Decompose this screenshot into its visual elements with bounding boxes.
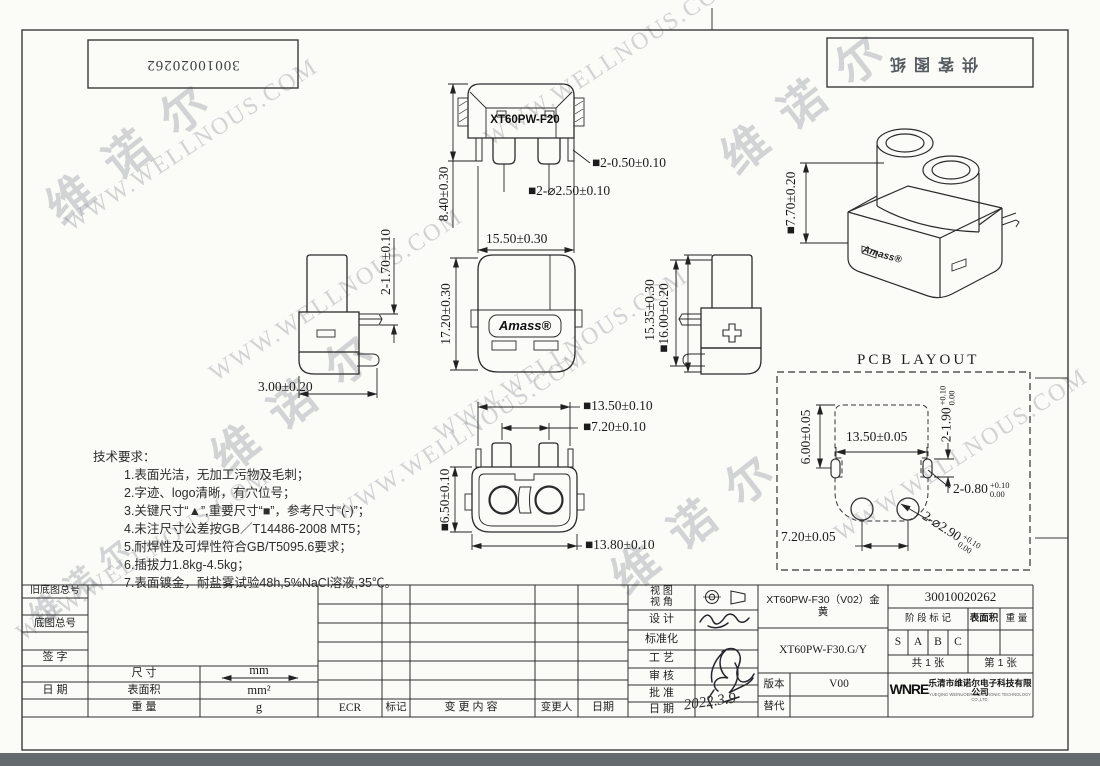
tech-requirements-title: 技术要求： [93, 446, 156, 465]
front-view-dim-lines [448, 84, 590, 253]
cell-doc-number: 30010020262 [888, 585, 1033, 608]
pcb-slot-length-tolerance: +0.100.00 [939, 386, 956, 406]
pcb-slot-width-tolerance: +0.100.00 [990, 481, 1010, 498]
cell-old-base-no: 旧底图总号 [22, 585, 88, 598]
dim-bottom-w2: ■7.20±0.10 [583, 419, 646, 435]
cell-surface-label: 表面积 [88, 682, 200, 699]
tech-item-5: 5.耐焊性及可焊性符合GB/T5095.6要求； [124, 536, 352, 555]
cell-stage-label: 阶 段 标 记 [888, 608, 968, 630]
cell-product-name: XT60PW-F30（V02）金 黄 [760, 587, 886, 626]
dim-front-height: 8.40±0.30 [436, 167, 452, 222]
tech-item-6: 6.插拔力1.8kg-4.5kg； [124, 554, 250, 573]
pcb-title: PCB LAYOUT [857, 352, 979, 369]
pcb-slot-length-value: 2-1.90 [938, 407, 953, 442]
tech-item-2: 2.字迹、logo清晰，有穴位号； [124, 482, 296, 501]
cell-standardize: 标准化 [628, 630, 695, 650]
cell-surface-value: mm² [200, 682, 318, 699]
iso-amass-logo: Amass® [860, 244, 903, 266]
cell-sheet-index: 第 1 张 [968, 655, 1033, 673]
dim-side-pin: 2-1.70±0.10 [378, 229, 394, 295]
cell-rev-mark: 标记 [382, 699, 410, 717]
company-name-en: YUEQING WEINUOER ELECTRONIC TECHNOLOGY C… [928, 694, 1032, 701]
cell-design: 设 计 [628, 610, 695, 630]
cell-sign-label: 签 字 [22, 650, 88, 666]
dim-front-width: 15.50±0.30 [486, 231, 547, 247]
cell-date-label: 日 期 [22, 682, 88, 699]
tech-item-3: 3.关键尺寸“▲”,重要尺寸“■”，参考尺寸“(-)”； [124, 500, 370, 519]
center-front-view [471, 255, 582, 372]
cell-base-no: 底图总号 [22, 615, 88, 632]
isometric-dim-lines [800, 163, 884, 243]
dim-bottom-w3: ■13.80±0.10 [585, 537, 655, 553]
cell-surface-col: 表面积 [968, 608, 1000, 630]
center-front-dim-lines [450, 258, 478, 370]
cell-weight-label: 重 量 [88, 699, 200, 717]
cell-sheet-total: 共 1 张 [888, 655, 968, 673]
dim-bottom-w1: ■13.50±0.10 [583, 398, 653, 414]
bottom-view-dim-lines [450, 402, 582, 550]
old-doc-number-box: 30010020262 [88, 40, 298, 88]
tech-item-7: 7.表面镀金，耐盐雾试验48h,5%NaCl溶液,35℃。 [124, 572, 397, 591]
cell-rev-date: 日期 [578, 699, 628, 717]
cell-weight-value: g [200, 699, 318, 717]
company-logo: WNRE [890, 680, 928, 698]
projection-symbol-icon [703, 591, 745, 605]
scan-edge [0, 753, 1100, 766]
tech-item-1: 1.表面光洁，无加工污物及毛刺； [124, 464, 309, 483]
dim-right-h2: ■16.00±0.20 [656, 283, 672, 353]
cell-product-model: XT60PW-F30.G/Y [760, 628, 886, 673]
cell-size-label: 尺 寸 [88, 666, 200, 682]
dim-front-pin: ■2-0.50±0.10 [592, 155, 666, 171]
cell-review: 审 核 [628, 668, 695, 685]
cell-weight-col: 重 量 [1000, 608, 1033, 630]
amass-logo: Amass® [491, 318, 559, 333]
isometric-view: Amass® [848, 129, 1019, 298]
cell-rev-ecr: ECR [318, 699, 382, 717]
cell-rev-content: 变更内容 [410, 699, 535, 717]
cell-stage-b: B [928, 630, 948, 655]
dim-side-offset: 3.00±0.20 [258, 379, 313, 395]
pcb-dim-width: 13.50±0.05 [846, 429, 907, 445]
cell-process: 工 艺 [628, 650, 695, 668]
cell-stage-a: A [908, 630, 928, 655]
cell-size-value: mm [200, 663, 318, 678]
front-view-part-label: XT60PW-F20 [489, 114, 561, 126]
dim-iso-height: ■7.70±0.20 [783, 172, 799, 235]
customer-drawing-stamp: 供客图纸 [827, 38, 1033, 87]
pcb-dim-pitch: 7.20±0.05 [781, 529, 836, 545]
cell-version-value: V00 [790, 673, 888, 696]
cell-stage-s: S [888, 630, 908, 655]
dim-front-dia: ■2-⌀2.50±0.10 [528, 183, 610, 199]
left-side-view [299, 255, 382, 374]
pcb-slot-width-value: 2-0.80 [953, 481, 988, 496]
bottom-view [465, 443, 584, 532]
pcb-dim-slot-width: 2-0.80+0.100.00 [953, 481, 1010, 498]
drawing-sheet: WWW.WELLNOUS.COM WWW.WELLNOUS.COM WWW.WE… [0, 0, 1100, 766]
cell-version-label: 版本 [758, 673, 790, 696]
dim-body-height: 17.20±0.30 [438, 283, 454, 344]
tech-item-4: 4.未注尺寸公差按GB／T14486-2008 MT5； [124, 518, 368, 537]
right-side-view [679, 255, 761, 374]
dim-bottom-h: ■6.50±0.10 [437, 469, 453, 532]
pcb-dim-slot-length: 2-1.90+0.100.00 [938, 386, 955, 443]
cell-stage-c: C [948, 630, 968, 655]
cell-view-angle: 视 图 视 角 [628, 585, 695, 610]
pcb-dim-vertical: 6.00±0.05 [798, 410, 814, 465]
cell-rev-person: 变更人 [535, 699, 578, 717]
cell-replace-label: 替代 [758, 696, 790, 717]
